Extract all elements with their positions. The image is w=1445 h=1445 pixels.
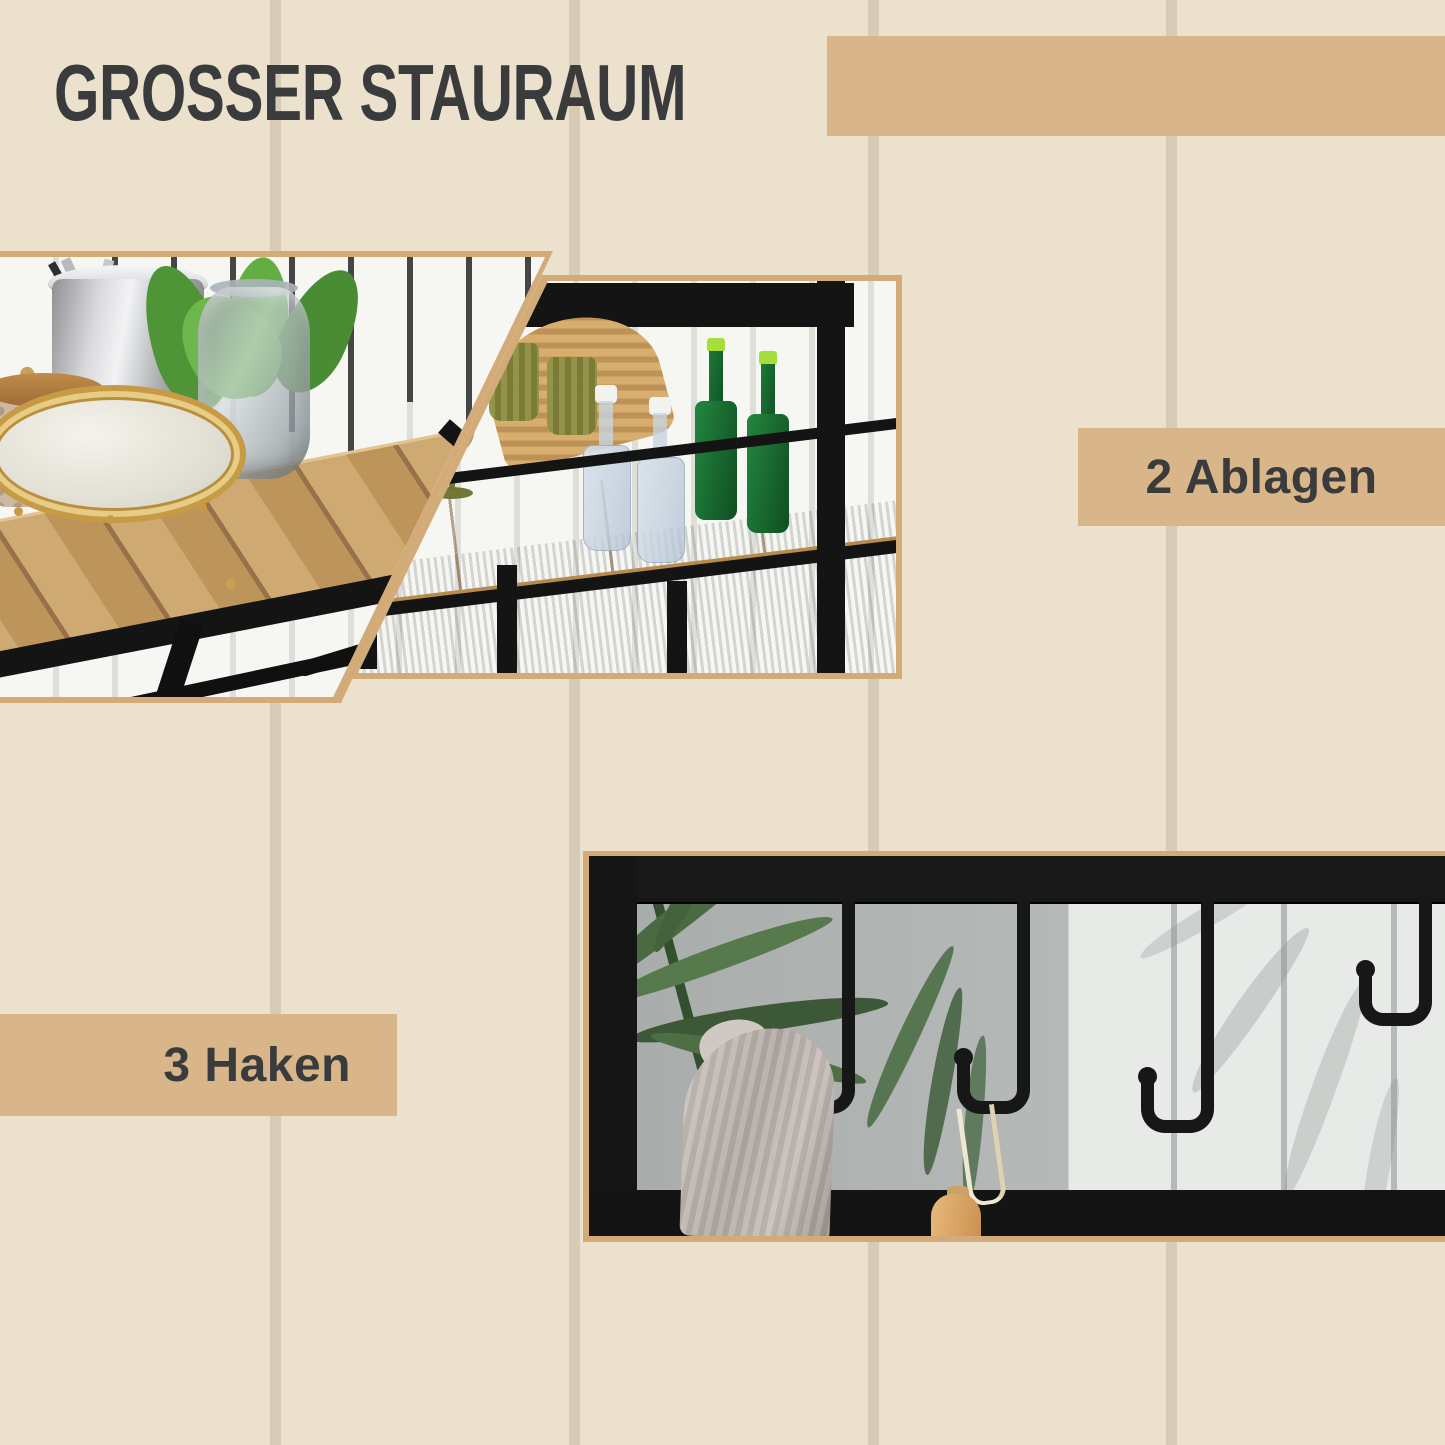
bottle-neck <box>599 401 613 447</box>
cart-top-bar <box>483 283 854 327</box>
wooden-handle <box>931 1194 981 1236</box>
hook-knob <box>954 1048 973 1067</box>
hook <box>1017 902 1030 1056</box>
page-title: GROSSER STAURAUM <box>54 47 686 139</box>
shelves-callout-label: 2 Ablagen <box>1145 450 1377 505</box>
shelf-leg <box>667 581 687 673</box>
rail-left-post <box>589 856 637 1236</box>
photo-hook-rail <box>583 851 1445 1242</box>
hook <box>1201 902 1214 1075</box>
panel-line <box>569 0 580 1445</box>
tray-foot <box>14 507 23 516</box>
panel-line <box>270 0 281 1445</box>
shelf-leg <box>497 565 517 673</box>
cart-leg-post <box>817 281 845 673</box>
hooks-callout: 3 Haken <box>0 1014 397 1116</box>
hook-knob <box>1138 1067 1157 1086</box>
clear-bottle <box>637 457 685 563</box>
green-bottle <box>695 401 737 520</box>
tray-foot <box>198 503 207 512</box>
shelves-callout: 2 Ablagen <box>1078 428 1445 526</box>
product-feature-graphic: GROSSER STAURAUM 2 Ablagen 3 Haken <box>0 0 1445 1445</box>
photo-hook-rail-scene <box>589 856 1445 1236</box>
green-bottle-neck <box>709 351 723 403</box>
hook <box>842 902 855 1056</box>
wall-rod <box>407 257 413 402</box>
green-bottle-cap <box>759 351 777 365</box>
hook-knob <box>1356 960 1375 979</box>
green-bottle-cap <box>707 338 725 352</box>
brass-screw <box>226 579 236 589</box>
tray-foot <box>106 515 115 524</box>
accent-bar <box>827 36 1445 136</box>
green-cup <box>547 357 597 435</box>
green-bottle-neck <box>761 364 775 416</box>
hooks-callout-label: 3 Haken <box>163 1038 351 1093</box>
slat-wall <box>1067 856 1445 1236</box>
hook-partial <box>1419 902 1432 968</box>
rail-top-bar <box>589 856 1445 904</box>
wall-rod <box>466 257 472 442</box>
